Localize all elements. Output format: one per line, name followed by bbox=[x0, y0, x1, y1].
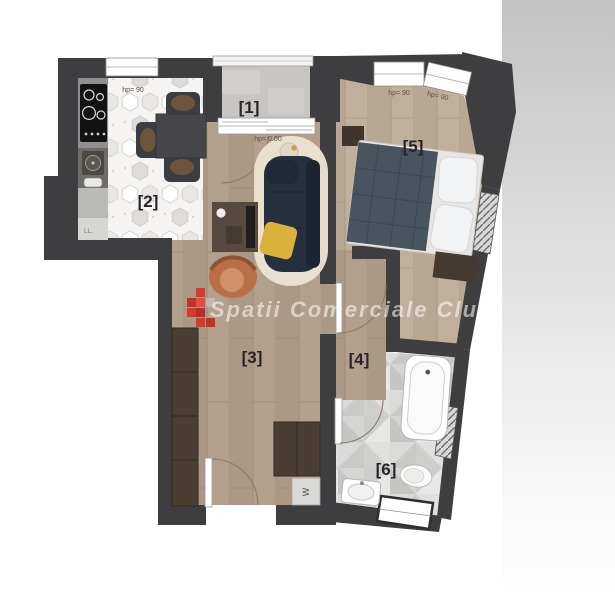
label-kitchen: [2] bbox=[138, 192, 159, 211]
bathroom-sink bbox=[341, 478, 381, 506]
label-bedroom: [5] bbox=[403, 137, 424, 156]
balcony-floor-texture2 bbox=[268, 88, 304, 114]
wall-living-bathroom bbox=[320, 334, 336, 505]
sofa-cushion bbox=[266, 160, 298, 184]
wardrobe-left bbox=[172, 328, 198, 506]
cabinet-tray bbox=[226, 226, 242, 244]
label-balcony: [1] bbox=[239, 98, 260, 117]
bed bbox=[346, 140, 484, 259]
wall-bottom-left bbox=[158, 505, 206, 525]
washing-machine-label: W bbox=[301, 487, 311, 496]
floor-plan-image: [1] [2] [3] [4] [5] [6] hp= 90 hp= 0.00 … bbox=[0, 0, 615, 600]
bathtub bbox=[400, 354, 452, 441]
entrance-opening bbox=[206, 505, 276, 525]
background-gradient bbox=[502, 0, 615, 600]
bathroom-door-leaf bbox=[335, 398, 342, 444]
balcony-floor-texture bbox=[220, 70, 260, 94]
hallway-floor bbox=[336, 246, 386, 404]
duvet bbox=[346, 142, 438, 251]
sofa-backrest bbox=[306, 160, 320, 268]
armchair bbox=[209, 256, 257, 298]
pillow-top bbox=[438, 156, 478, 203]
balcony-door-hp: hp= 0.00 bbox=[254, 136, 282, 143]
wall-balcony-right bbox=[310, 56, 340, 122]
mug bbox=[216, 208, 225, 217]
label-hallway: [4] bbox=[349, 350, 370, 369]
wall-bottom-right bbox=[276, 505, 336, 525]
kitchen-window-hp: hp= 90 bbox=[122, 87, 144, 94]
label-bathroom: [6] bbox=[376, 460, 397, 479]
kitchen-appliance-label: LL. bbox=[84, 228, 93, 235]
entrance-door-leaf bbox=[205, 458, 212, 507]
kitchen-cabinet bbox=[78, 188, 108, 218]
kitchen-faucet bbox=[84, 178, 102, 187]
pillow-bottom bbox=[429, 203, 474, 254]
wall-balcony-left bbox=[203, 58, 222, 122]
dining-table bbox=[156, 114, 206, 158]
bed-bench bbox=[433, 251, 480, 282]
wall-living-left bbox=[158, 240, 172, 525]
wall-kitchen-bottom bbox=[44, 238, 172, 260]
bedroom-window1-hp: hp= 90 bbox=[388, 90, 410, 97]
wall-kitchen-left bbox=[58, 58, 78, 250]
watermark-text: Spatii Comerciale Cluj bbox=[210, 297, 486, 322]
label-living: [3] bbox=[242, 348, 263, 367]
tv bbox=[246, 206, 255, 248]
floor-plan-page: [1] [2] [3] [4] [5] [6] hp= 90 hp= 0.00 … bbox=[0, 0, 615, 600]
